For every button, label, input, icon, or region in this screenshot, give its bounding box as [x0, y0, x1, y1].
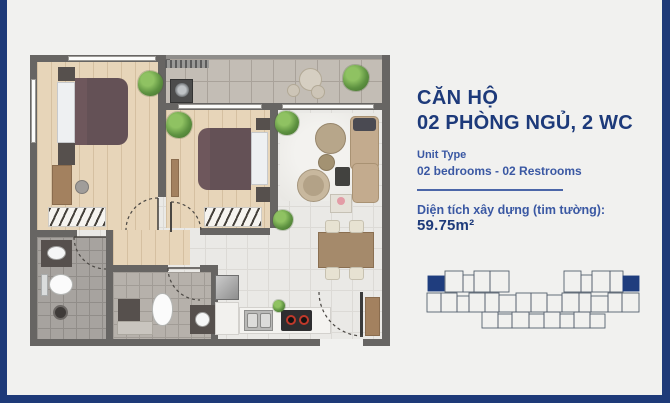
key-plan-unit: [499, 295, 516, 312]
key-plan-unit: [463, 275, 474, 292]
key-plan-highlighted-unit: [623, 276, 639, 291]
key-plan-unit: [485, 293, 499, 312]
unit-type-value: 02 bedrooms - 02 Restrooms: [417, 164, 659, 178]
area-row: Diện tích xây dựng (tim tường): 59.75m²: [417, 203, 659, 234]
unit-type-label: Unit Type: [417, 149, 659, 161]
floor-plan: [30, 55, 390, 346]
door-arcs-overlay: [30, 55, 390, 346]
key-plan-unit: [498, 314, 512, 328]
key-plan-unit: [581, 275, 592, 292]
key-plan-unit: [457, 296, 469, 312]
key-plan-unit: [591, 296, 608, 312]
key-plan-unit: [516, 293, 531, 312]
frame-left-bar: [0, 0, 7, 403]
key-plan-unit: [469, 293, 485, 312]
key-plan-unit: [608, 293, 622, 312]
key-plan-unit: [474, 271, 490, 292]
key-plan-unit: [445, 271, 463, 292]
key-plan-unit: [512, 312, 529, 328]
panel-title-line1: CĂN HỘ: [417, 86, 659, 111]
frame-bottom-bar: [0, 395, 670, 403]
key-plan-unit: [592, 271, 610, 292]
area-label: Diện tích xây dựng (tim tường):: [417, 203, 605, 217]
key-plan-unit: [531, 293, 547, 312]
key-plan: [426, 268, 658, 330]
key-plan-unit: [579, 293, 591, 312]
key-plan-unit: [560, 314, 574, 328]
key-plan-unit: [562, 293, 579, 312]
key-plan-unit: [544, 312, 560, 328]
key-plan-unit: [441, 293, 457, 312]
divider-line: [417, 189, 563, 191]
key-plan-unit: [490, 271, 509, 292]
page: { "panel": { "title_line1": "CĂN HỘ", "t…: [0, 0, 670, 403]
key-plan-unit: [574, 312, 590, 328]
key-plan-unit: [529, 314, 544, 328]
info-panel: CĂN HỘ 02 PHÒNG NGỦ, 2 WC Unit Type 02 b…: [417, 86, 659, 234]
key-plan-highlighted-unit: [428, 276, 444, 291]
panel-title-line2: 02 PHÒNG NGỦ, 2 WC: [417, 111, 659, 136]
key-plan-unit: [610, 271, 623, 292]
key-plan-unit: [427, 293, 441, 312]
key-plan-unit: [564, 271, 581, 292]
key-plan-unit: [590, 314, 605, 328]
frame-right-bar: [662, 0, 670, 403]
key-plan-unit: [547, 295, 562, 312]
key-plan-unit: [622, 293, 639, 312]
area-value: 59.75m²: [417, 217, 474, 234]
key-plan-unit: [482, 312, 498, 328]
